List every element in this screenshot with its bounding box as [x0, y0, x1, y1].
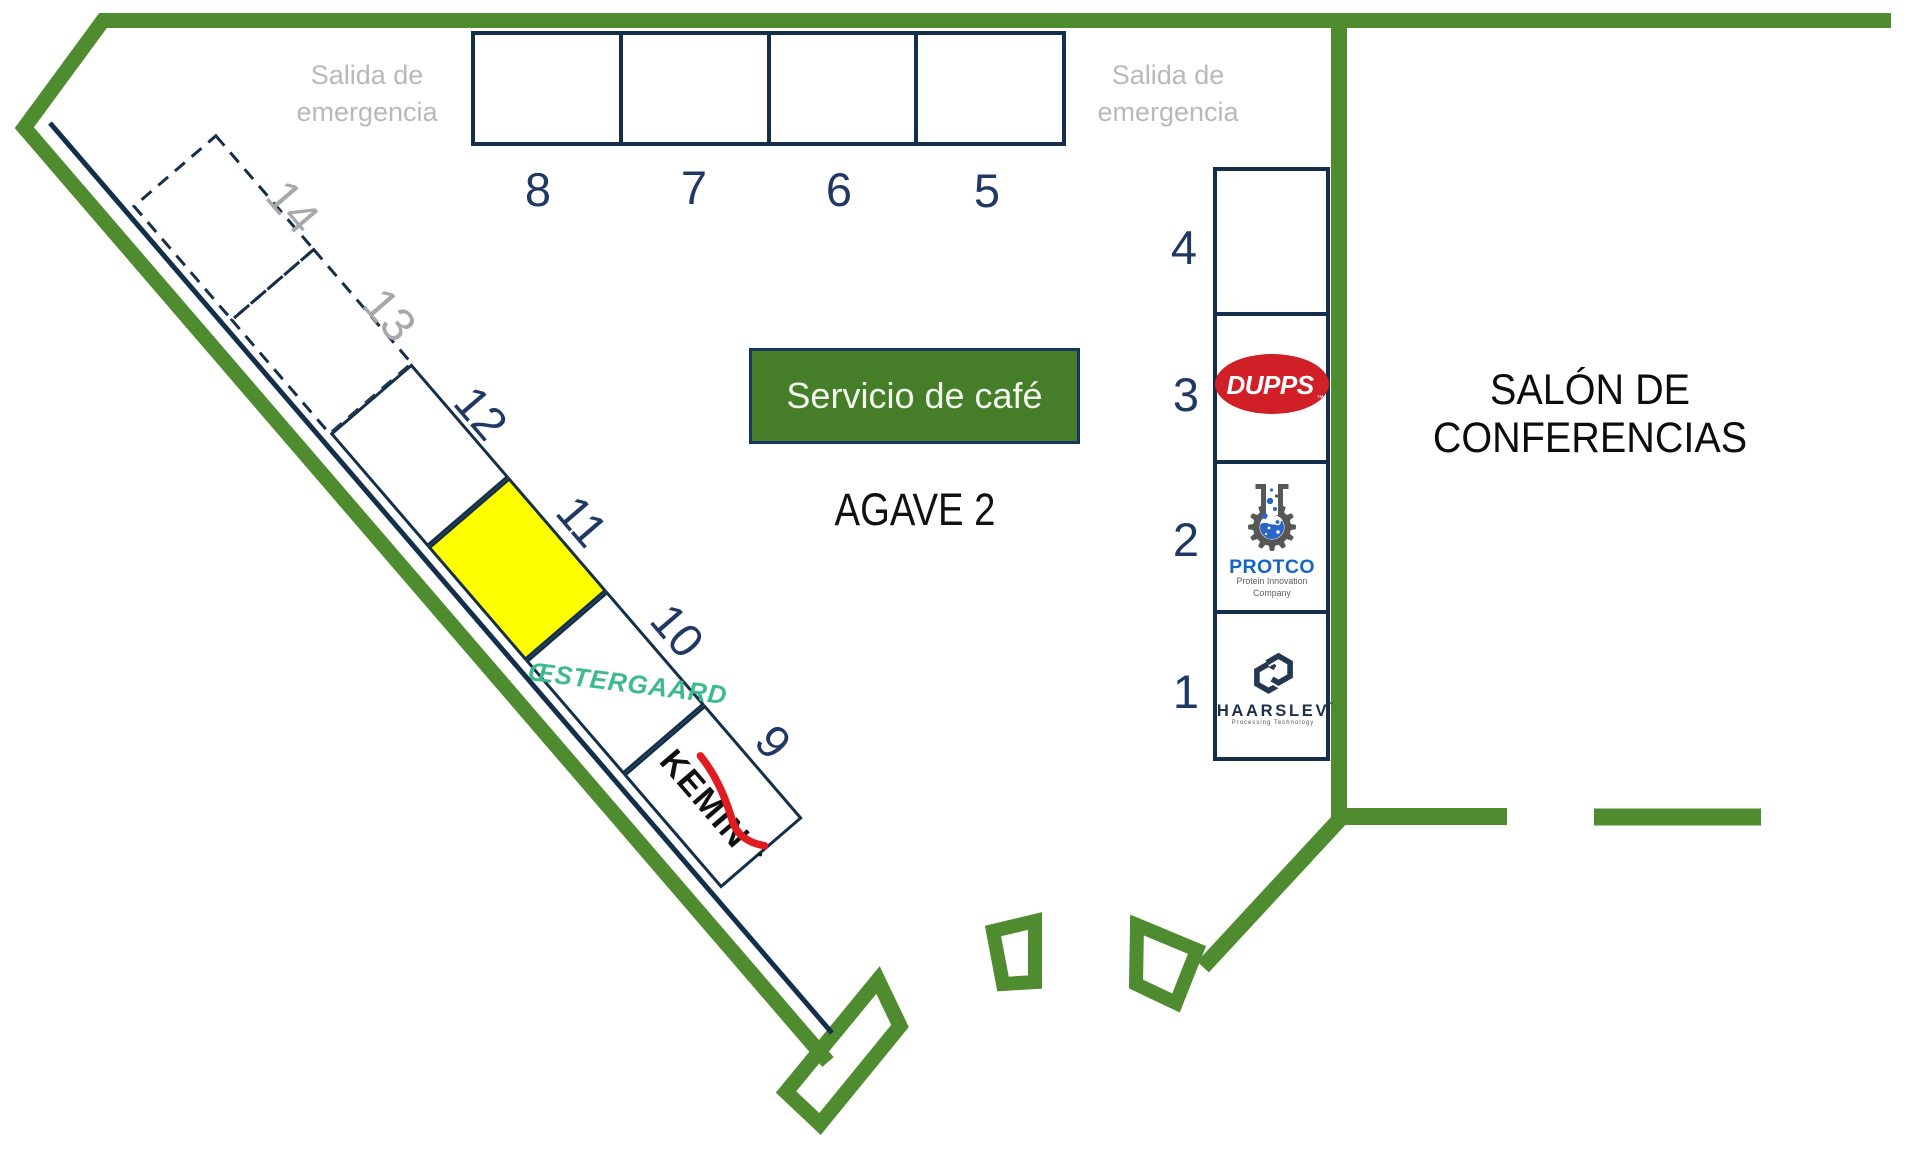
svg-text:PROTCO: PROTCO [1229, 556, 1315, 578]
svg-text:™: ™ [1317, 395, 1324, 402]
svg-text:HAARSLEV: HAARSLEV [1217, 702, 1329, 720]
svg-text:Processing Technology: Processing Technology [1232, 720, 1315, 726]
svg-text:Company: Company [1253, 588, 1291, 598]
svg-text:Protein Innovation: Protein Innovation [1237, 576, 1308, 586]
svg-text:™: ™ [1327, 701, 1333, 708]
svg-text:DUPPS: DUPPS [1226, 370, 1314, 400]
